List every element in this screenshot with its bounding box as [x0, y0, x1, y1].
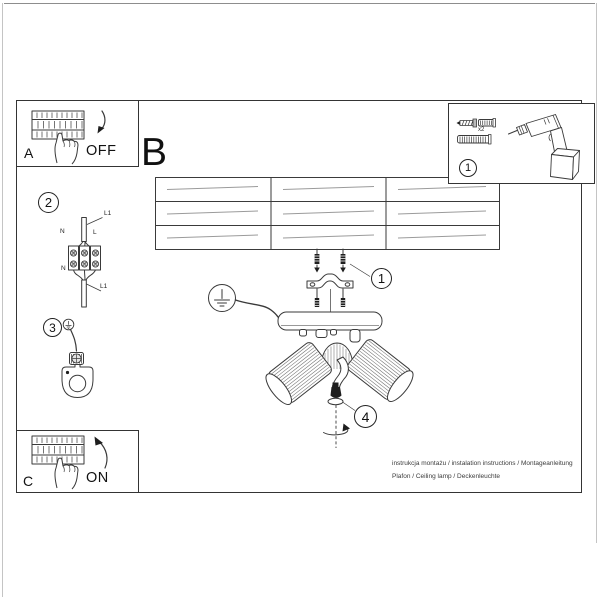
wire-icon: [74, 270, 96, 280]
canopy-screw-icon: [315, 289, 319, 307]
rotation-arrow-icon: [324, 424, 351, 435]
ground-symbol-icon: [63, 319, 74, 330]
mounting-screw-icon: [314, 249, 320, 273]
drill-icon: [509, 115, 580, 180]
canopy-screw-icon: [341, 289, 345, 307]
page-top-edge-line: [4, 3, 595, 4]
step-leader-line: [343, 402, 356, 411]
instruction-sheet: N L L1 N L L1: [0, 0, 600, 600]
panel-a-label: A: [24, 145, 33, 161]
wall-plug-icon: [479, 119, 496, 128]
shade-right-icon: [346, 338, 418, 406]
arrow-up-icon: [95, 437, 108, 469]
step-badge-mount: 1: [371, 268, 392, 289]
panel-a-state: OFF: [86, 143, 117, 159]
cable-clamp-icon: [70, 353, 84, 365]
step-badge-wiring: 2: [38, 192, 59, 213]
step-badge-bulb: 4: [354, 405, 377, 428]
page-right-edge-line: [596, 3, 597, 543]
arrow-down-icon: [98, 111, 105, 134]
terminal-block-drawing: [50, 210, 120, 315]
mains-cable-icon: [82, 280, 87, 307]
panel-c-state: ON: [86, 470, 109, 486]
step-badge-tools: 1: [459, 159, 477, 177]
power-cord-icon: [236, 300, 279, 317]
ground-symbol-icon: [209, 285, 236, 312]
panel-step-a: A OFF: [16, 100, 139, 167]
mains-cable-icon: [82, 218, 87, 242]
bracket-plate-icon: [62, 365, 93, 398]
screw-quantity-label: x2: [478, 127, 484, 133]
terminal-block-icon: [69, 246, 101, 270]
shade-left-icon: [262, 341, 334, 409]
section-b-label: B: [141, 133, 167, 172]
mounting-screw-icon: [340, 249, 346, 273]
ground-wire-icon: [71, 330, 77, 352]
panel-c-label: C: [23, 473, 33, 489]
page-left-edge-line: [2, 3, 3, 597]
canopy-icon: [278, 312, 382, 330]
step-leader-line: [350, 264, 370, 277]
screw-icon: [457, 119, 477, 127]
tools-box: x2 1: [448, 103, 595, 184]
ceiling-planks-icon: [155, 177, 500, 250]
lamp-holder-stub-icon: [300, 330, 361, 343]
panel-step-c: C ON: [16, 430, 139, 493]
step-badge-ground: 3: [43, 318, 62, 337]
wall-plug-icon: [458, 135, 492, 145]
socket-ring-icon: [328, 398, 343, 404]
